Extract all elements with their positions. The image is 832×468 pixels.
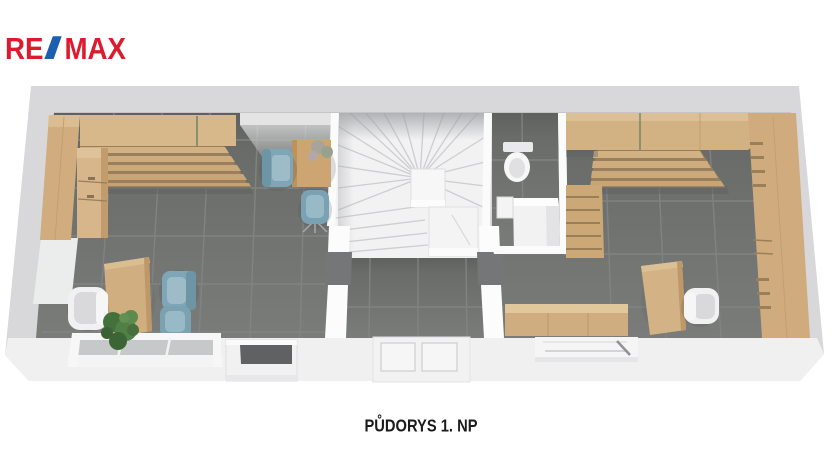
svg-text:MAX: MAX [65,31,127,66]
svg-text:RE: RE [5,31,44,66]
svg-text:PŮDORYS 1. NP: PŮDORYS 1. NP [365,414,478,436]
